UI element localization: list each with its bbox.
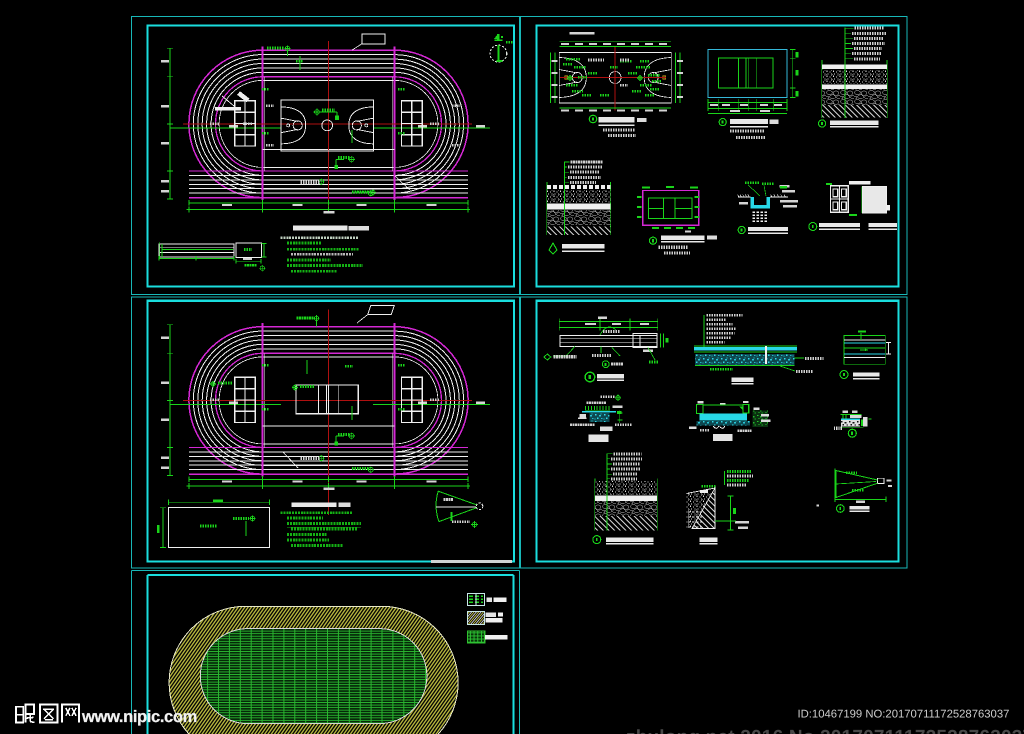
svg-text:ID:10467199 NO:201707111725287: ID:10467199 NO:20170711172528763037 bbox=[798, 709, 1010, 721]
svg-text:www.nipic.com: www.nipic.com bbox=[81, 707, 197, 726]
svg-text:zhulong.net 2016 No.2017071117: zhulong.net 2016 No.20170711172528763037 bbox=[626, 727, 1024, 734]
